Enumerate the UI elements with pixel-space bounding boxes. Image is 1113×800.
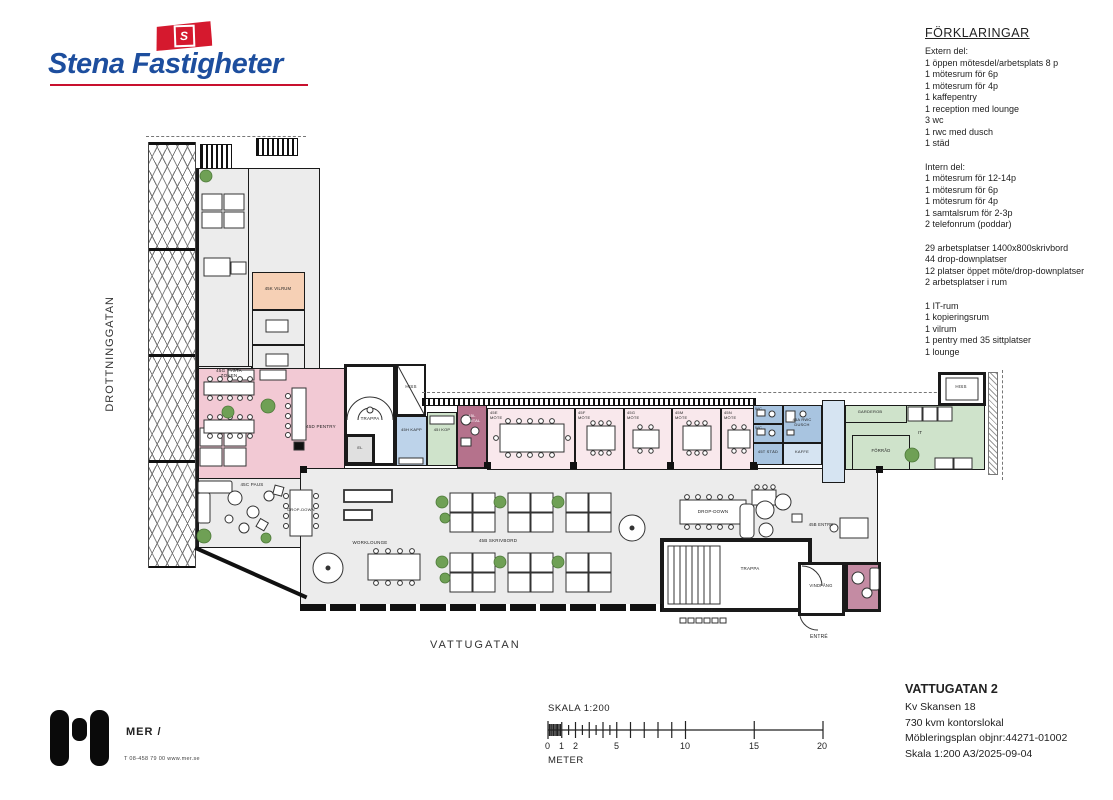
title-block: VATTUGATAN 2 Kv Skansen 18 730 kvm konto… [905, 682, 1110, 762]
scale-bar-block: SKALA 1:200 0 1 2 5 1 [546, 703, 846, 773]
scale-tick-15: 15 [749, 741, 759, 751]
diagonal-wall [194, 546, 307, 599]
mer-contact: T 08-458 79 00 www.mer.se [124, 756, 200, 762]
room-lounge-east [845, 562, 881, 612]
room-trappa-east [660, 538, 812, 612]
scale-tick-10: 10 [680, 741, 690, 751]
scale-tick-5: 5 [614, 741, 619, 751]
brand-underline [50, 84, 308, 86]
label-mote-1: 45E MÖTE [490, 411, 510, 421]
legend-line: 1 öppen mötesdel/arbetsplats 8 p [925, 58, 1107, 70]
label-wc-1: WC [755, 407, 767, 412]
room-paus-lounge [196, 478, 310, 548]
label-trappa-east: TRAPPA [730, 566, 770, 571]
label-paus: 45C PAUS [238, 482, 266, 487]
mer-logo-block: MER / T 08-458 79 00 www.mer.se [50, 706, 270, 776]
label-rwc: 45A RWC DUSCH [785, 418, 819, 428]
label-trappa-west: TRAPPA [352, 416, 388, 421]
room-kapprum [396, 416, 427, 466]
label-worklounge: WORKLOUNGE [344, 540, 396, 545]
scale-tick-20: 20 [817, 741, 827, 751]
legend-line: Extern del: [925, 46, 1107, 58]
corridor [822, 400, 845, 483]
legend-line: 1 mötesrum för 4p [925, 81, 1107, 93]
brand-name: Stena Fastigheter [48, 48, 318, 81]
label-kapprum: 45H KAPP [398, 428, 425, 433]
project-line-4: Skala 1:200 A3/2025-09-04 [905, 747, 1110, 763]
boundary-hatch [988, 372, 998, 475]
label-sittfonster: SITTFÖNSTRET [670, 608, 730, 613]
label-vindfang: VINDFÅNG [800, 583, 842, 588]
label-dropdown-b: DROP-DOWN [694, 509, 732, 514]
label-mote-3: 45G MÖTE [627, 411, 647, 421]
label-it: IT [912, 430, 928, 435]
label-mote-4: 45M MÖTE [675, 411, 695, 421]
project-line-1: Kv Skansen 18 [905, 700, 1110, 716]
label-wc-2: WC [755, 426, 767, 431]
roof-hatch [256, 138, 298, 156]
room-kopiering [427, 412, 457, 466]
scale-title: SKALA 1:200 [548, 703, 610, 714]
label-forrad: FÖRRÅD [862, 448, 900, 453]
street-label-drottninggatan: DROTTNINGGATAN [104, 296, 116, 412]
legend-title: FÖRKLARINGAR [925, 26, 1107, 40]
label-pentry: 45D PENTRY [306, 424, 336, 429]
scale-bar [546, 717, 836, 741]
boundary-line [422, 392, 982, 393]
label-mote-2: 45F MÖTE [578, 411, 598, 421]
label-entre-outer: ENTRÉ [802, 634, 836, 640]
scale-unit: METER [548, 755, 584, 766]
label-skrivbord: 45B SKRIVBORD [476, 538, 520, 543]
facade-truss [148, 142, 196, 568]
label-mote-5: 45N MÖTE [724, 411, 744, 421]
scale-tick-1: 1 [559, 741, 564, 751]
legend-line: 3 wc [925, 115, 1107, 127]
room-open-office-west [196, 168, 252, 368]
label-tysta-zonen: 45G TYSTA ZONEN [210, 368, 248, 379]
room-vindfang [798, 562, 845, 616]
legend-line: 1 reception med lounge [925, 104, 1107, 116]
exterior-wall-hatch [422, 398, 756, 406]
project-line-2: 730 kvm kontorslokal [905, 716, 1110, 732]
boundary-line [1002, 370, 1003, 480]
mer-name: MER / [126, 726, 162, 738]
label-hiss-west: HISS [402, 384, 420, 389]
label-kopiering: 45I KOP [429, 428, 455, 433]
label-dropdown-a: DROP-DOWN [282, 508, 320, 513]
boundary-line [146, 136, 306, 137]
room-hiss-west [396, 364, 426, 416]
window-wall [300, 604, 662, 611]
scale-tick-2: 2 [573, 741, 578, 751]
label-kaffe: KAFFE [790, 450, 814, 455]
drawing-sheet: S Stena Fastigheter FÖRKLARINGAR Extern … [0, 0, 1113, 800]
stena-flag-icon: S [156, 21, 213, 51]
label-garderob: GARDEROB [850, 410, 890, 415]
legend-line: 1 mötesrum för 6p [925, 69, 1107, 81]
roof-hatch [200, 144, 232, 170]
project-line-3: Möbleringsplan objnr:44271-01002 [905, 731, 1110, 747]
room-telefonrum-1 [252, 310, 305, 345]
project-title: VATTUGATAN 2 [905, 682, 1110, 696]
label-el: EL [350, 446, 370, 451]
legend-line: 1 kaffepentry [925, 92, 1107, 104]
floor-plan: 45G TYSTA ZONEN 45K VILRUM 45D PENTRY 45… [140, 130, 1010, 645]
label-hiss-east: HISS [950, 384, 972, 389]
stena-logo: S Stena Fastigheter [48, 22, 318, 90]
stena-flag-letter: S [173, 25, 195, 48]
label-entre-inner: 45B ENTRE [804, 522, 838, 527]
label-stad: 45T STÄD [754, 450, 782, 455]
label-vilrum: 45K VILRUM [262, 286, 294, 291]
scale-tick-0: 0 [545, 741, 550, 751]
label-samtal: 45L SAMTAL [460, 414, 484, 424]
